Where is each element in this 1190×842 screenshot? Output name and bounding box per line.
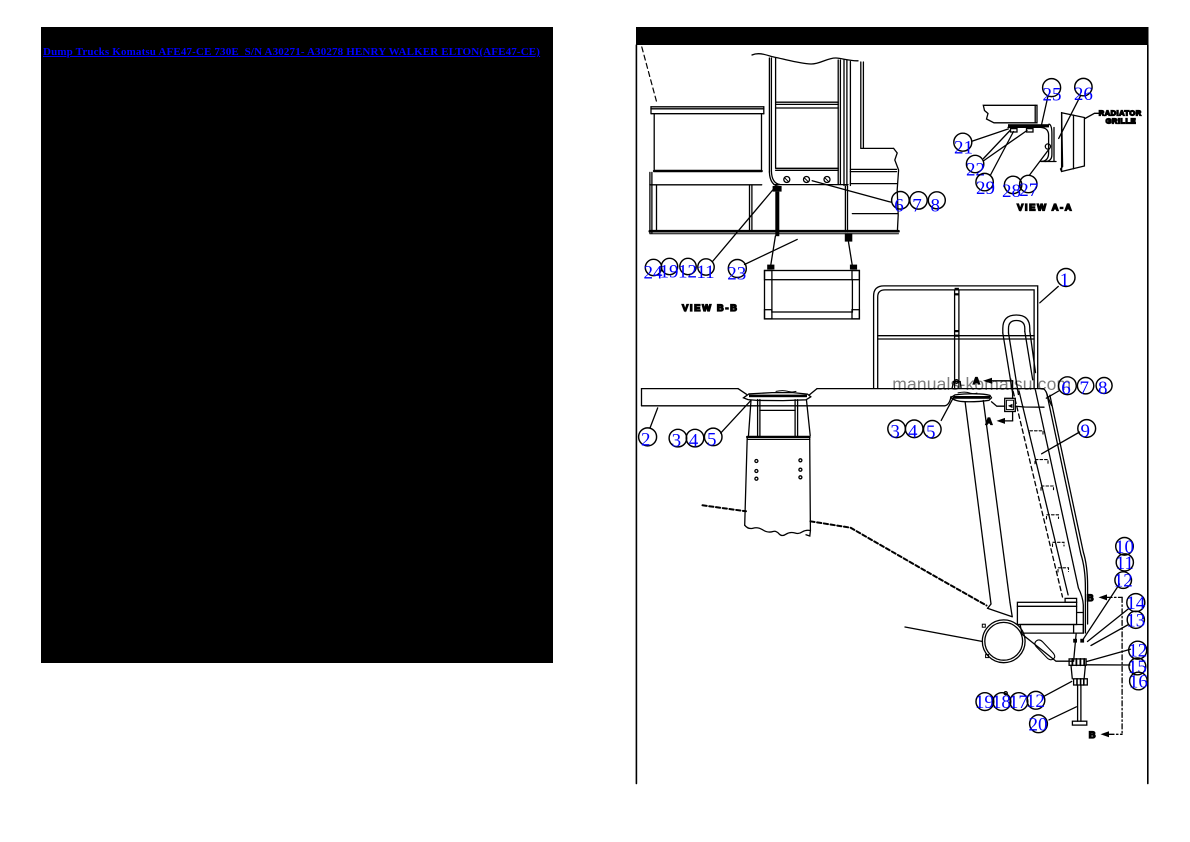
svg-text:B: B: [1089, 730, 1096, 741]
svg-text:8: 8: [1098, 378, 1108, 399]
svg-text:7: 7: [1079, 378, 1089, 399]
svg-text:6: 6: [1061, 378, 1071, 399]
svg-text:20: 20: [1029, 714, 1048, 735]
svg-text:27: 27: [1019, 180, 1038, 201]
svg-text:11: 11: [696, 262, 714, 283]
svg-text:13: 13: [1126, 610, 1145, 631]
svg-text:28: 28: [1002, 181, 1021, 202]
svg-text:7: 7: [912, 195, 922, 216]
svg-text:VIEW B-B: VIEW B-B: [682, 303, 739, 314]
svg-text:3: 3: [890, 421, 900, 442]
svg-text:GRILLE: GRILLE: [1106, 117, 1137, 126]
svg-text:12: 12: [1026, 691, 1045, 712]
svg-text:4: 4: [908, 421, 918, 442]
svg-text:29: 29: [976, 178, 995, 199]
svg-text:5: 5: [926, 422, 936, 443]
svg-text:A: A: [973, 376, 980, 387]
svg-text:23: 23: [727, 264, 746, 285]
svg-text:12: 12: [1114, 571, 1133, 592]
svg-text:3: 3: [672, 431, 682, 452]
svg-text:25: 25: [1043, 85, 1062, 106]
svg-text:12: 12: [678, 262, 697, 283]
svg-text:21: 21: [954, 137, 973, 158]
svg-text:26: 26: [1074, 84, 1093, 105]
svg-text:6: 6: [894, 195, 904, 216]
svg-text:VIEW A-A: VIEW A-A: [1017, 203, 1073, 214]
svg-text:16: 16: [1129, 672, 1148, 693]
svg-text:manuals-komatsu.com: manuals-komatsu.com: [892, 374, 1071, 394]
svg-text:B: B: [1087, 593, 1094, 604]
svg-text:2: 2: [641, 429, 651, 450]
svg-text:1: 1: [1060, 270, 1070, 291]
svg-text:4: 4: [689, 431, 699, 452]
svg-text:8: 8: [931, 195, 941, 216]
svg-text:19: 19: [660, 262, 679, 283]
svg-text:5: 5: [707, 429, 717, 450]
svg-text:9: 9: [1080, 421, 1090, 442]
